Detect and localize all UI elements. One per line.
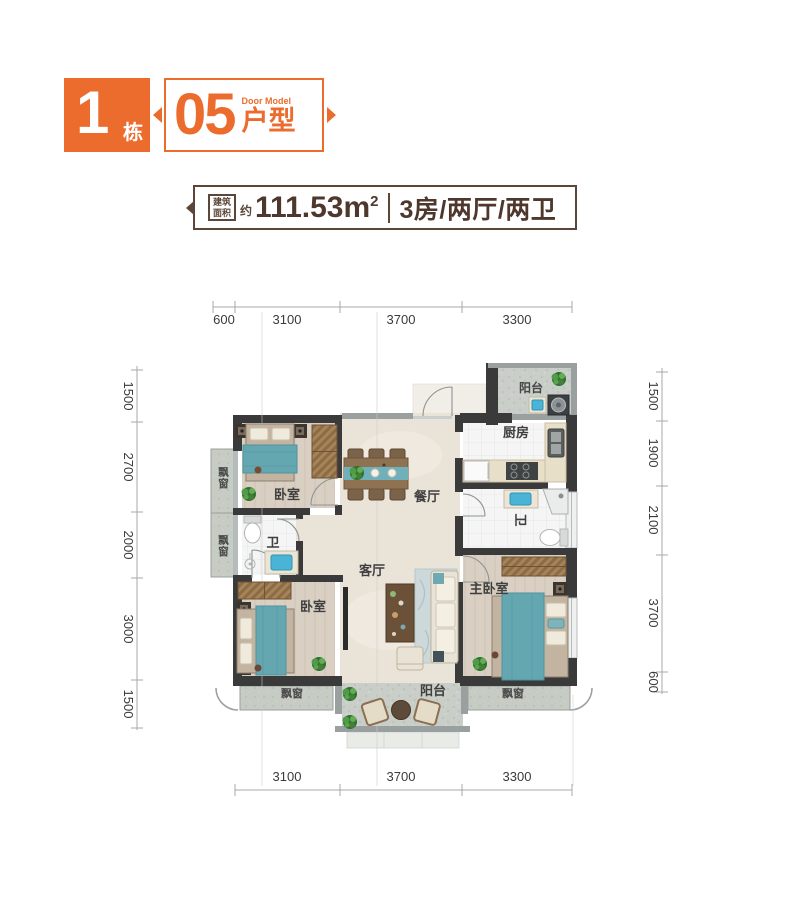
label-living: 客厅 [359, 563, 385, 578]
dim-left-0: 1500 [121, 382, 136, 411]
dim-right-3: 3700 [646, 599, 661, 628]
dim-top-0: 600 [213, 312, 235, 327]
area-label-line2: 面积 [213, 208, 231, 218]
model-label-column: Door Model 户型 [242, 96, 296, 135]
label-dining: 餐厅 [413, 489, 440, 504]
dim-left-2: 2000 [121, 531, 136, 560]
label-bay-left-bottom: 飘窗 [217, 535, 229, 558]
dimension-top: 600 3100 3700 3300 [213, 301, 572, 327]
dim-left-3: 3000 [121, 615, 136, 644]
approx-label: 约 [240, 202, 252, 219]
label-bay-bottom-right: 飘窗 [502, 686, 524, 700]
building-badge: 1 栋 [64, 78, 150, 152]
label-master-bedroom: 主卧室 [469, 581, 508, 596]
label-bay-bottom-left: 飘窗 [281, 686, 303, 700]
dim-left-4: 1500 [121, 690, 136, 719]
area-label-line1: 建筑 [213, 197, 231, 207]
label-balcony-top: 阳台 [519, 380, 543, 395]
dimension-left: 1500 2700 2000 3000 1500 [121, 366, 143, 730]
unit-type-badge: 1 栋 05 Door Model 户型 [64, 78, 336, 152]
dim-right-2: 2100 [646, 506, 661, 535]
label-bay-left-top: 飘窗 [217, 467, 229, 490]
dim-right-4: 600 [646, 671, 661, 693]
dim-top-3: 3300 [503, 312, 532, 327]
badge-right-arrow-icon [327, 107, 336, 123]
label-bedroom-top: 卧室 [274, 487, 300, 502]
model-sublabel: Door Model [242, 96, 296, 106]
dim-bottom-1: 3700 [387, 769, 416, 784]
dim-right-1: 1900 [646, 439, 661, 468]
badge-left-arrow-icon [153, 107, 162, 123]
dim-left-1: 2700 [121, 453, 136, 482]
label-bedroom-bottom: 卧室 [300, 599, 326, 614]
label-kitchen: 厨房 [503, 425, 529, 440]
info-bar-pointer-icon [186, 201, 194, 215]
model-label: 户型 [242, 108, 296, 135]
area-value: 111.53m2 [255, 193, 378, 223]
layout-text: 3房/两厅/两卫 [400, 190, 557, 226]
dim-right-0: 1500 [646, 382, 661, 411]
building-number: 1 [76, 74, 109, 152]
label-balcony-bottom: 阳台 [420, 683, 446, 698]
model-number: 05 [174, 86, 235, 144]
label-bath-right: 卫 [513, 513, 528, 526]
dim-top-1: 3100 [273, 312, 302, 327]
floor-plan-svg: 阳台 厨房 餐厅 卧室 卫 卧室 客厅 卫 主卧室 阳台 飘窗 飘窗 飘窗 飘窗… [110, 282, 730, 812]
dim-bottom-0: 3100 [273, 769, 302, 784]
dim-top-2: 3700 [387, 312, 416, 327]
area-label-box: 建筑 面积 [208, 194, 236, 221]
label-bath-left: 卫 [266, 535, 279, 550]
dimension-bottom: 3100 3700 3300 [235, 769, 572, 796]
info-bar-divider [388, 193, 390, 223]
dimension-right: 1500 1900 2100 3700 600 [646, 368, 668, 694]
area-superscript: 2 [370, 193, 378, 210]
model-badge: 05 Door Model 户型 [164, 78, 324, 152]
building-unit-label: 栋 [123, 116, 143, 145]
area-info-bar: 建筑 面积 约 111.53m2 3房/两厅/两卫 [193, 185, 577, 230]
floor-plan: 阳台 厨房 餐厅 卧室 卫 卧室 客厅 卫 主卧室 阳台 飘窗 飘窗 飘窗 飘窗… [110, 282, 730, 812]
dim-bottom-2: 3300 [503, 769, 532, 784]
room-dining [344, 449, 408, 500]
